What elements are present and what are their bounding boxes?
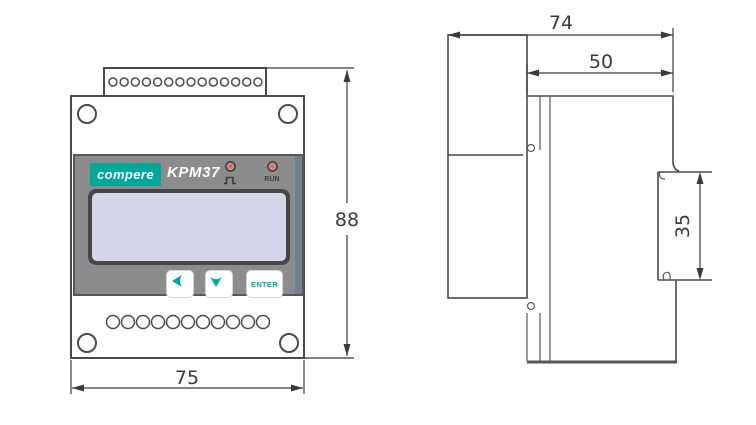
terminal-hole-icon: [242, 316, 255, 329]
terminal-hole-icon: [131, 78, 139, 86]
terminal-hole-icon: [152, 316, 165, 329]
enter-button: ENTER: [247, 271, 282, 297]
down-arrow-button: [206, 271, 232, 297]
rail-hook-icon: [663, 272, 670, 280]
screw-hole-icon: [78, 105, 96, 123]
side-front-cover-outline: [448, 35, 527, 298]
dimension-depth-rear: 50: [527, 51, 673, 94]
brand-name: compere: [97, 167, 154, 182]
bottom-terminal-holes: [107, 316, 270, 329]
terminal-hole-icon: [198, 78, 206, 86]
run-led-label: RUN: [261, 176, 283, 183]
dim-depth-total-label: 74: [549, 12, 573, 34]
pulse-led-icon: [225, 161, 236, 172]
arrowhead-icon: [661, 70, 673, 77]
terminal-hole-icon: [137, 316, 150, 329]
arrowhead-icon: [72, 385, 84, 392]
dimensional-drawing: 88 75: [0, 0, 756, 425]
terminal-hole-icon: [122, 316, 135, 329]
down-arrow-icon: [206, 271, 226, 291]
terminal-hole-icon: [187, 78, 195, 86]
arrowhead-icon: [697, 268, 704, 280]
terminal-hole-icon: [176, 78, 184, 86]
dim-width-label: 75: [175, 367, 199, 389]
latch-pin-icon: [528, 145, 535, 152]
terminal-hole-icon: [107, 316, 120, 329]
terminal-hole-icon: [212, 316, 225, 329]
arrowhead-icon: [661, 32, 673, 39]
dimension-depth-total: 74: [448, 12, 673, 92]
dimension-width: 75: [71, 360, 304, 394]
arrowhead-icon: [697, 172, 704, 184]
terminal-hole-icon: [142, 78, 150, 86]
latch-pin-icon: [528, 303, 535, 310]
dim-height-label: 88: [335, 209, 359, 231]
arrowhead-icon: [344, 344, 351, 356]
front-panel: compere KPM37 RUN ENTER: [73, 154, 304, 296]
panel-side-bevel: [295, 156, 302, 294]
terminal-hole-icon: [243, 78, 251, 86]
terminal-hole-icon: [254, 78, 262, 86]
terminal-hole-icon: [167, 316, 180, 329]
lcd-screen: [92, 193, 286, 261]
terminal-hole-icon: [221, 78, 229, 86]
screw-hole-icon: [78, 334, 96, 352]
terminal-hole-icon: [232, 78, 240, 86]
terminal-hole-icon: [257, 316, 270, 329]
pulse-icon: [223, 176, 237, 185]
arrowhead-icon: [344, 70, 351, 82]
side-view: 35 74 50: [448, 12, 712, 362]
dim-depth-rear-label: 50: [589, 51, 613, 73]
screw-hole-icon: [280, 334, 298, 352]
terminal-hole-icon: [154, 78, 162, 86]
terminal-hole-icon: [120, 78, 128, 86]
run-led-icon: [267, 161, 278, 172]
terminal-hole-icon: [209, 78, 217, 86]
terminal-hole-icon: [182, 316, 195, 329]
arrowhead-icon: [448, 32, 460, 39]
lcd-frame: [88, 189, 290, 265]
din-rail-slot: 35: [658, 172, 712, 280]
terminal-hole-icon: [197, 316, 210, 329]
left-arrow-button: [167, 271, 193, 297]
arrowhead-icon: [291, 385, 303, 392]
terminal-hole-icon: [227, 316, 240, 329]
rail-hook-icon: [660, 172, 665, 179]
terminal-hole-icon: [109, 78, 117, 86]
brand-logo: compere: [90, 163, 161, 186]
arrowhead-icon: [527, 70, 539, 77]
model-number: KPM37: [167, 164, 220, 181]
terminal-hole-icon: [165, 78, 173, 86]
screw-hole-icon: [279, 105, 297, 123]
dim-rail-label: 35: [672, 214, 694, 238]
left-arrow-icon: [167, 271, 187, 291]
